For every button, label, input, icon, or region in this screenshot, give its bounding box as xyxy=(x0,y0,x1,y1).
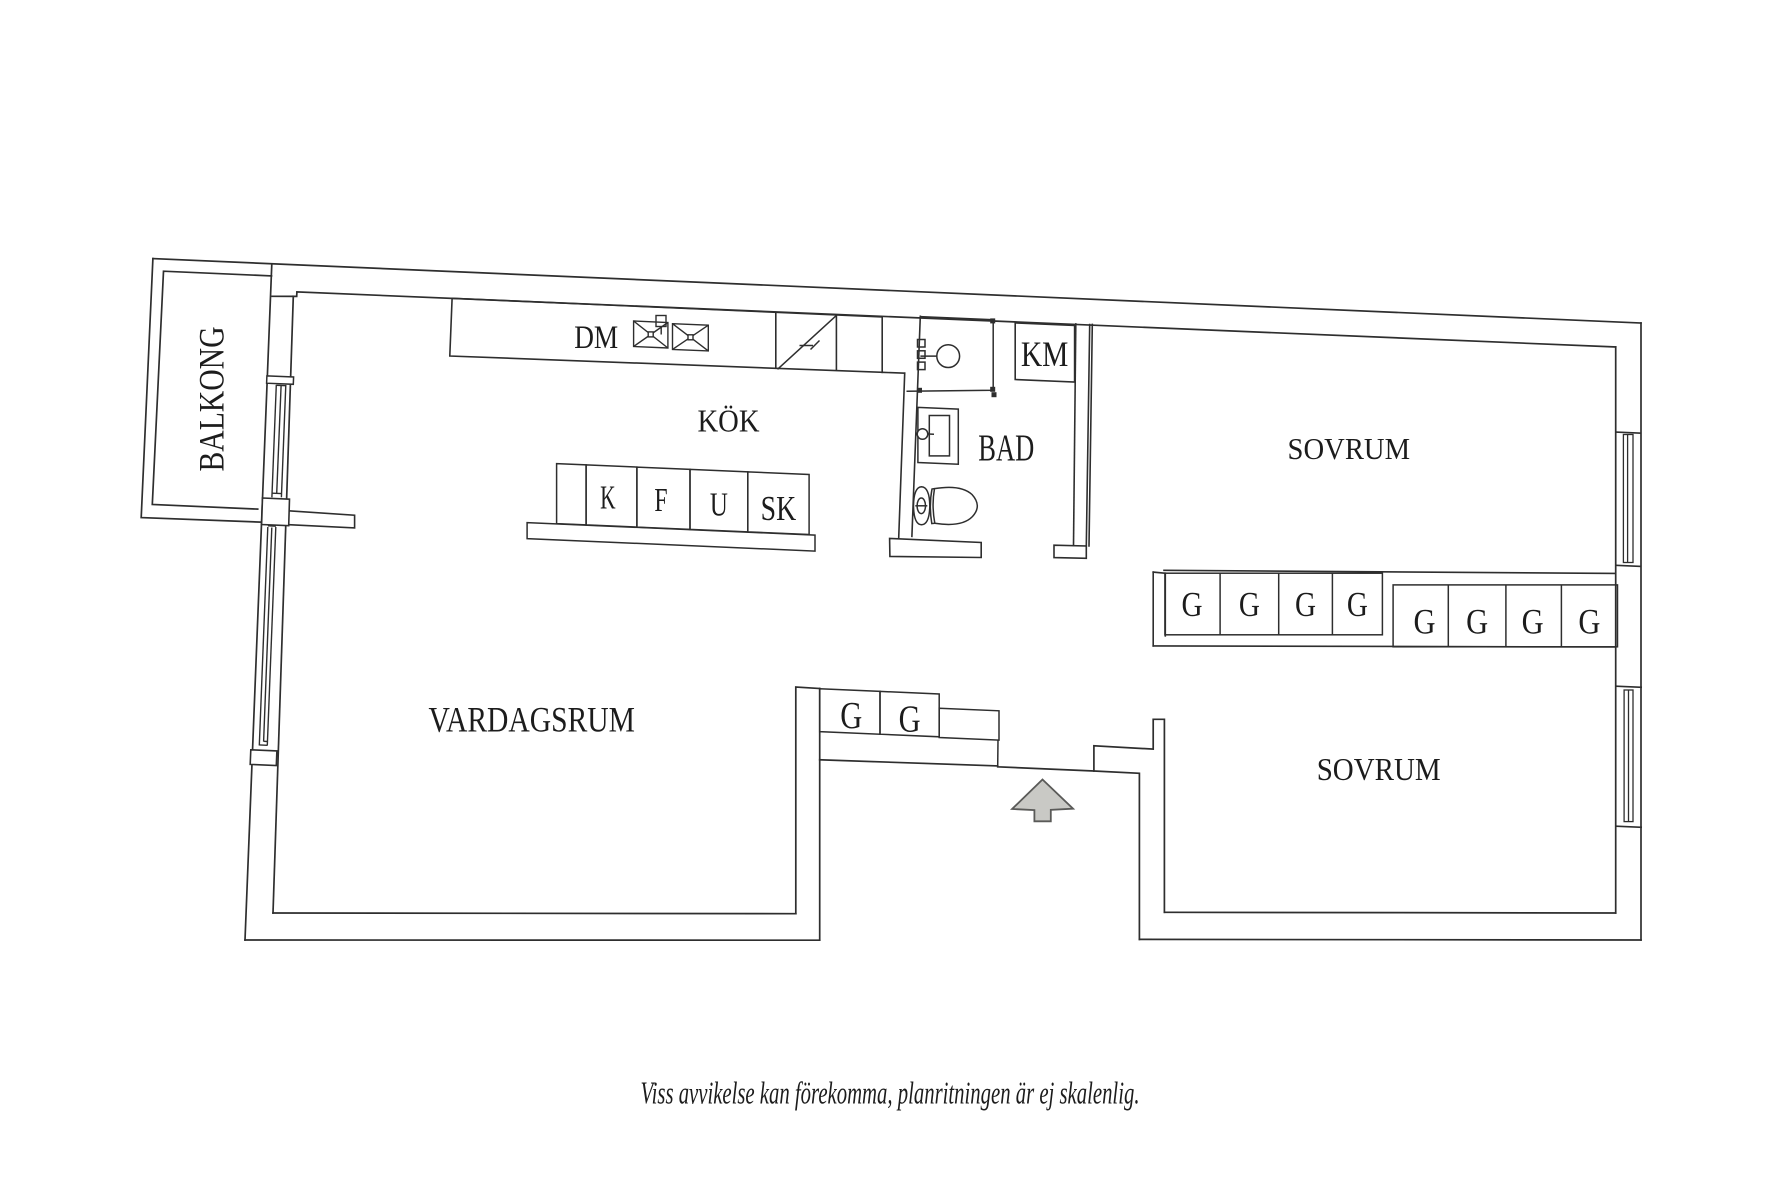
svg-text:K: K xyxy=(600,479,616,516)
svg-text:G: G xyxy=(1414,602,1436,642)
svg-text:SK: SK xyxy=(761,489,797,528)
svg-text:G: G xyxy=(1522,602,1544,642)
svg-text:G: G xyxy=(1182,585,1203,624)
svg-text:SOVRUM: SOVRUM xyxy=(1288,431,1411,466)
svg-text:G: G xyxy=(1466,602,1488,642)
svg-text:F: F xyxy=(654,482,667,519)
svg-text:G: G xyxy=(899,699,921,741)
svg-text:DM: DM xyxy=(574,320,618,356)
svg-text:KÖK: KÖK xyxy=(698,404,760,439)
svg-text:G: G xyxy=(1295,585,1316,624)
svg-text:BAD: BAD xyxy=(978,427,1034,469)
svg-text:G: G xyxy=(1578,602,1600,642)
svg-text:G: G xyxy=(840,695,862,737)
svg-text:G: G xyxy=(1239,585,1260,624)
svg-text:KM: KM xyxy=(1021,334,1069,374)
svg-text:U: U xyxy=(710,487,728,524)
svg-text:SOVRUM: SOVRUM xyxy=(1317,751,1441,787)
svg-text:BALKONG: BALKONG xyxy=(191,327,231,472)
svg-text:G: G xyxy=(1347,585,1368,624)
svg-text:Viss avvikelse kan förekomma,: Viss avvikelse kan förekomma, planritnin… xyxy=(641,1076,1140,1111)
svg-text:VARDAGSRUM: VARDAGSRUM xyxy=(428,700,635,740)
